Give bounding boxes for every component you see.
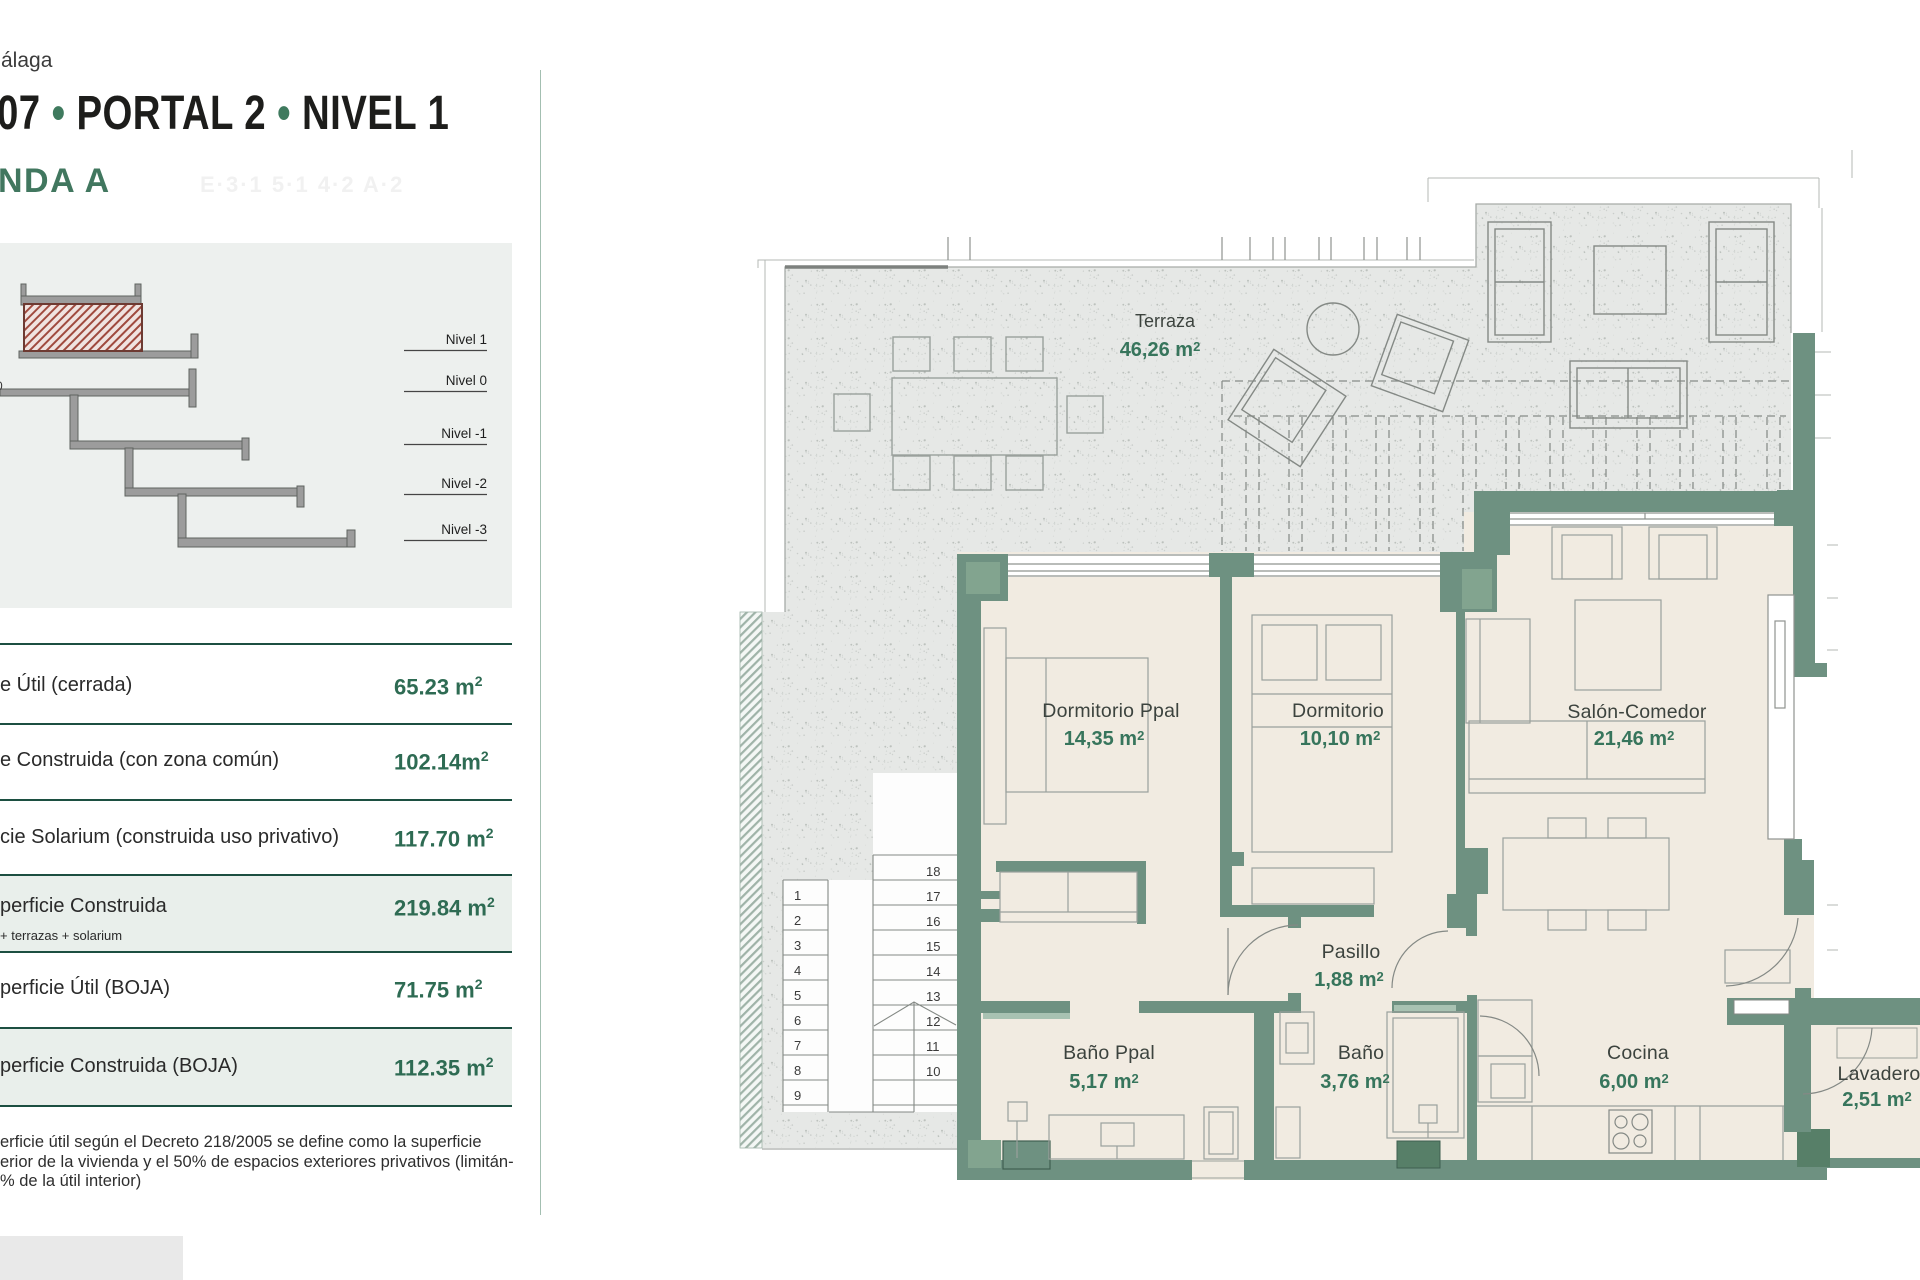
svg-text:Dormitorio Ppal: Dormitorio Ppal	[1042, 700, 1179, 722]
svg-text:Salón-Comedor: Salón-Comedor	[1567, 701, 1706, 723]
svg-text:Baño: Baño	[1338, 1042, 1384, 1064]
svg-text:10,10 m2: 10,10 m2	[1300, 728, 1381, 750]
svg-text:3,76 m2: 3,76 m2	[1320, 1071, 1390, 1093]
svg-text:Dormitorio: Dormitorio	[1292, 700, 1384, 722]
svg-text:6: 6	[794, 1013, 801, 1028]
svg-text:4: 4	[794, 963, 801, 978]
svg-text:15: 15	[926, 939, 940, 954]
svg-text:1: 1	[794, 888, 801, 903]
svg-text:21,46 m2: 21,46 m2	[1594, 728, 1675, 750]
svg-text:6,00 m2: 6,00 m2	[1599, 1071, 1669, 1093]
svg-text:7: 7	[794, 1038, 801, 1053]
svg-text:11: 11	[926, 1039, 940, 1054]
svg-text:3: 3	[794, 938, 801, 953]
svg-text:Pasillo: Pasillo	[1322, 941, 1381, 963]
svg-text:16: 16	[926, 914, 940, 929]
svg-text:Lavadero: Lavadero	[1838, 1063, 1920, 1085]
svg-text:12: 12	[926, 1014, 940, 1029]
svg-text:5: 5	[794, 988, 801, 1003]
svg-text:5,17 m2: 5,17 m2	[1069, 1071, 1139, 1093]
svg-text:14,35 m2: 14,35 m2	[1064, 728, 1145, 750]
svg-text:46,26 m2: 46,26 m2	[1120, 339, 1201, 361]
svg-text:9: 9	[794, 1088, 801, 1103]
svg-text:17: 17	[926, 889, 940, 904]
svg-text:1,88 m2: 1,88 m2	[1314, 969, 1384, 991]
svg-text:14: 14	[926, 964, 940, 979]
svg-text:13: 13	[926, 989, 940, 1004]
svg-text:Baño Ppal: Baño Ppal	[1063, 1042, 1155, 1064]
svg-text:Cocina: Cocina	[1607, 1042, 1669, 1064]
svg-text:2,51 m2: 2,51 m2	[1842, 1089, 1912, 1111]
svg-text:2: 2	[794, 913, 801, 928]
svg-text:10: 10	[926, 1064, 940, 1079]
svg-text:8: 8	[794, 1063, 801, 1078]
svg-text:Terraza: Terraza	[1135, 311, 1196, 331]
svg-text:18: 18	[926, 864, 940, 879]
